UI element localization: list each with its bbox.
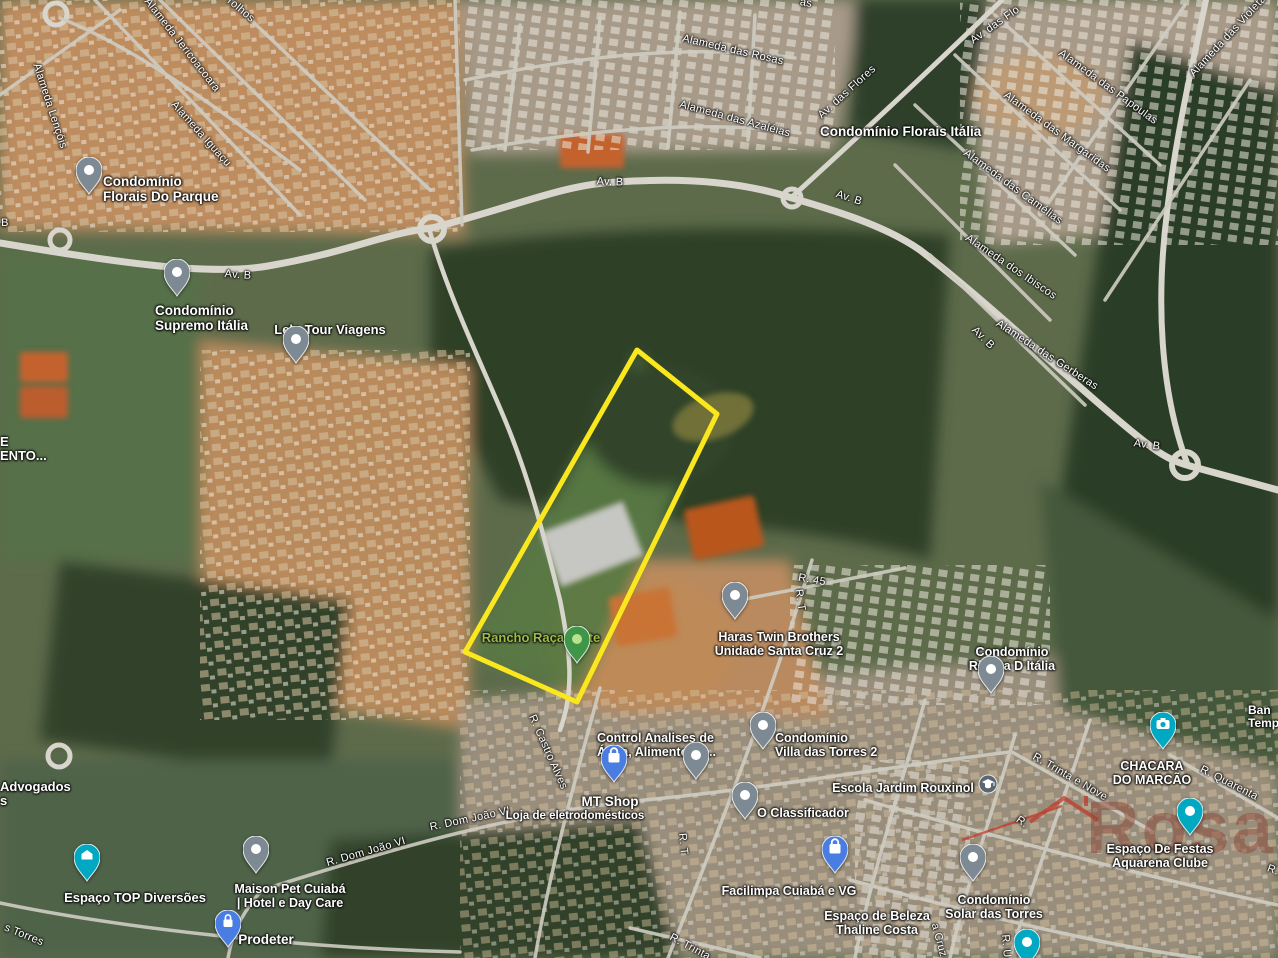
poi-label[interactable]: CondomínioSolar das Torres — [945, 893, 1043, 921]
poi-label[interactable]: Maison Pet Cuiabá| Hotel e Day Care — [234, 882, 345, 910]
poi-label-line: CHACARA — [1113, 759, 1191, 773]
street-label: R. Trinta — [668, 931, 713, 958]
map-pin-condominio-villa-das-torres-2[interactable] — [750, 712, 776, 755]
poi-label[interactable]: MT Shop — [582, 794, 639, 809]
poi-label-line: Villa das Torres 2 — [775, 745, 877, 759]
street-label: Alameda das Camélias — [961, 147, 1064, 227]
poi-label-line: Condomínio — [945, 893, 1043, 907]
map-pin-mt-shop[interactable] — [601, 745, 627, 788]
poi-label[interactable]: CondomínioSupremo Itália — [155, 303, 248, 333]
poi-label[interactable]: Espaço de BelezaThaline Costa — [824, 909, 930, 937]
camera-pin-icon — [1150, 712, 1176, 750]
poi-label[interactable]: O Classificador — [757, 806, 849, 820]
street-label: R. Quarenta — [1198, 763, 1260, 802]
map-pin-prodeter[interactable] — [215, 910, 241, 953]
dot-pin-icon — [283, 326, 309, 364]
poi-label-line: Espaço De Festas — [1107, 842, 1214, 856]
dot-pin-icon — [164, 259, 190, 297]
poi-label[interactable]: Espaço De FestasAquarena Clube — [1107, 842, 1214, 870]
poi-label[interactable]: Prodeter — [238, 932, 294, 947]
street-label: Alameda Iguaçu — [169, 99, 234, 169]
poi-label-line: Aquarena Clube — [1107, 856, 1214, 870]
satellite-map-viewport[interactable]: Rosa Alameda JericoacoararolhosAlameda L… — [0, 0, 1278, 958]
map-pin-espaco-de-festas-aquarena[interactable] — [1177, 798, 1203, 841]
poi-label[interactable]: BanTemp — [1248, 704, 1278, 731]
poi-label-line: Escola Jardim Rouxinol — [832, 781, 974, 795]
map-pin-clipped-bottom-pin[interactable] — [1014, 929, 1040, 958]
street-label: as — [799, 0, 813, 10]
poi-label[interactable]: Espaço TOP Diversões — [64, 891, 206, 906]
poi-label-line: Maison Pet Cuiabá — [234, 882, 345, 896]
poi-label-line: Condomínio — [155, 303, 248, 318]
map-pin-condominio-riviera-d-italia[interactable] — [978, 656, 1004, 699]
poi-label-line: ENTO... — [0, 449, 47, 464]
poi-label-line: Solar das Torres — [945, 907, 1043, 921]
poi-label-line: Unidade Santa Cruz 2 — [715, 644, 844, 658]
street-label: R. T — [793, 588, 808, 611]
graduation-cap-icon — [978, 774, 998, 794]
dot-pin-icon — [1014, 929, 1040, 958]
poi-label[interactable]: Condomínio Florais Itália — [820, 124, 981, 139]
poi-label-line: Espaço de Beleza — [824, 909, 930, 923]
dot-pin-icon — [564, 626, 590, 664]
street-label: Alameda das Margaridas — [1001, 89, 1112, 174]
poi-label[interactable]: Advogadoss — [0, 780, 71, 809]
street-label: Alameda Lençóis — [31, 62, 70, 150]
street-label: R. 45 — [797, 572, 826, 589]
dot-pin-icon — [76, 157, 102, 195]
poi-label-line: Haras Twin Brothers — [715, 630, 844, 644]
poi-label[interactable]: Haras Twin BrothersUnidade Santa Cruz 2 — [715, 630, 844, 658]
poi-label[interactable]: CHACARADO MARCÃO — [1113, 759, 1191, 787]
map-pin-o-classificador[interactable] — [732, 782, 758, 825]
street-label: Av. B — [596, 176, 623, 189]
poi-label-line: Supremo Itália — [155, 318, 248, 333]
poi-label-line: DO MARCÃO — [1113, 773, 1191, 787]
dot-pin-icon — [732, 782, 758, 820]
poi-label[interactable]: CondomínioFlorais Do Parque — [103, 174, 219, 204]
bag-pin-icon — [601, 745, 627, 783]
poi-label[interactable]: CondomínioVilla das Torres 2 — [775, 731, 877, 759]
street-label: Av. das Flo — [968, 4, 1022, 47]
street-label: Alameda Jericoacoara — [142, 0, 223, 94]
poi-label-line: Condomínio — [775, 731, 877, 745]
street-label: R. — [1265, 862, 1278, 877]
dot-pin-icon — [750, 712, 776, 750]
dot-pin-icon — [960, 844, 986, 882]
street-label: Alameda das Papoulas — [1056, 47, 1159, 127]
map-pin-condominio-supremo-italia[interactable] — [164, 259, 190, 302]
map-pin-rancho-raca-forte[interactable] — [564, 626, 590, 669]
poi-label[interactable]: Facilimpa Cuiabá e VG — [722, 884, 857, 898]
poi-label-line: Advogados — [0, 780, 71, 795]
street-label: Alameda das Gerberas — [994, 318, 1100, 393]
poi-label-line: Thaline Costa — [824, 923, 930, 937]
map-pin-chacara-do-marcao[interactable] — [1150, 712, 1176, 755]
street-label: Alameda dos Ibiscos — [963, 232, 1059, 302]
street-label: R. Dom João VI — [325, 835, 407, 869]
dot-pin-icon — [722, 582, 748, 620]
poi-label-line: Temp — [1248, 717, 1278, 730]
street-label: R. Castro Alves — [526, 713, 570, 791]
street-label: B — [1, 217, 9, 229]
poi-label[interactable]: EENTO... — [0, 435, 47, 464]
street-label: Alameda das Violeta — [1187, 0, 1268, 79]
street-label: Av. B — [969, 324, 996, 351]
street-label: R. Dom João VI — [429, 805, 512, 834]
map-overlay: Alameda JericoacoararolhosAlameda Lençói… — [0, 0, 1278, 958]
poi-label[interactable]: Loja de eletrodomésticos — [506, 810, 645, 823]
poi-label-line: Condomínio — [103, 174, 219, 189]
map-pin-facilimpa-cuiaba[interactable] — [822, 836, 848, 879]
dot-pin-icon — [978, 656, 1004, 694]
poi-label-line: Florais Do Parque — [103, 189, 219, 204]
bag-pin-icon — [822, 836, 848, 874]
poi-label[interactable]: Escola Jardim Rouxinol — [832, 781, 974, 795]
map-pin-maison-pet-cuiaba[interactable] — [243, 836, 269, 879]
map-pin-lelo-tour-viagens[interactable] — [283, 326, 309, 369]
poi-label-line: Condomínio Florais Itália — [820, 124, 981, 139]
poi-label-line: O Classificador — [757, 806, 849, 820]
street-label: R. T — [676, 833, 690, 856]
poi-label-line: MT Shop — [582, 794, 639, 809]
map-pin-haras-twin-brothers[interactable] — [722, 582, 748, 625]
poi-label-line: | Hotel e Day Care — [234, 896, 345, 910]
poi-label-line: s — [0, 794, 71, 809]
graduation-cap-badge-escola-jardim-rouxinol[interactable] — [978, 774, 998, 799]
street-label: R. — [1014, 814, 1030, 830]
poi-label-line: Espaço TOP Diversões — [64, 891, 206, 906]
poi-label-line: Loja de eletrodomésticos — [506, 810, 645, 823]
street-label: Alameda das Rosas — [681, 33, 785, 68]
poi-label-line: Prodeter — [238, 932, 294, 947]
dot-pin-icon — [243, 836, 269, 874]
map-pin-condominio-florais-do-parque[interactable] — [76, 157, 102, 200]
house-pin-icon — [74, 844, 100, 882]
street-label: a Cruz — [929, 922, 949, 958]
street-label: Alameda das Azaléias — [678, 98, 791, 139]
poi-label-line: Facilimpa Cuiabá e VG — [722, 884, 857, 898]
street-label: R. U — [999, 934, 1013, 958]
street-label: Av. B — [1133, 437, 1161, 453]
street-label: Av. das Flores — [816, 63, 879, 121]
dot-pin-icon — [683, 742, 709, 780]
street-label: Av. B — [224, 268, 252, 282]
street-label: R. Trinta e Nove — [1031, 751, 1110, 804]
street-label: s Torres — [3, 922, 46, 949]
street-label: Av. B — [834, 188, 863, 208]
street-label: rolhos — [225, 0, 257, 25]
map-pin-control-analises[interactable] — [683, 742, 709, 785]
dot-pin-icon — [1177, 798, 1203, 836]
lock-pin-icon — [215, 910, 241, 948]
map-pin-espaco-top-diversoes[interactable] — [74, 844, 100, 887]
map-pin-condominio-solar-das-torres[interactable] — [960, 844, 986, 887]
